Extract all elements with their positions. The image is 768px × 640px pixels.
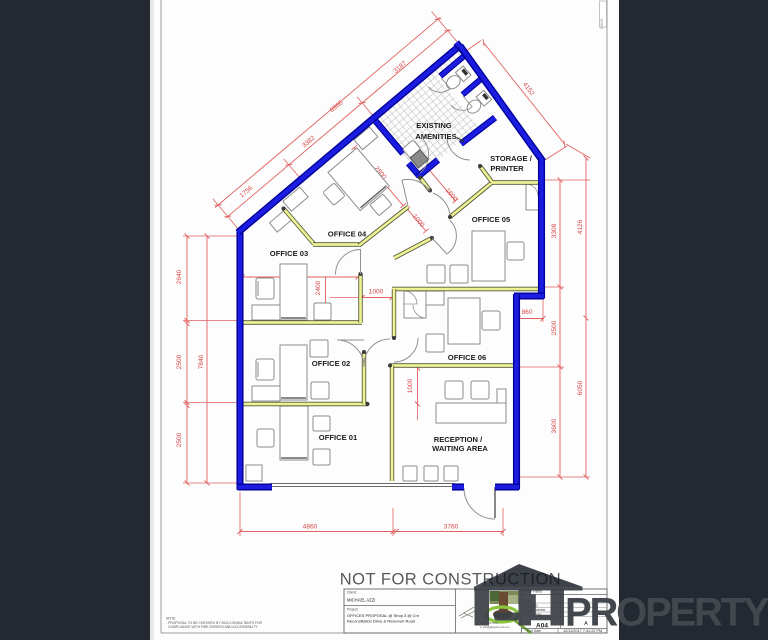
svg-text:OFFICE 01: OFFICE 01 xyxy=(319,433,358,442)
svg-text:e. info@jlproperty.com.au: e. info@jlproperty.com.au xyxy=(480,625,510,629)
svg-text:7840: 7840 xyxy=(198,354,205,369)
svg-text:Plot Date: Plot Date xyxy=(527,629,541,633)
svg-text:RECEPTION /: RECEPTION / xyxy=(434,435,483,444)
svg-text:STORAGE /: STORAGE / xyxy=(490,154,533,163)
svg-text:1000: 1000 xyxy=(369,289,384,296)
svg-text:NOT FOR CONSTRUCTION: NOT FOR CONSTRUCTION xyxy=(340,571,561,589)
svg-text:OFFICE 04: OFFICE 04 xyxy=(328,230,367,239)
svg-text:AMENITIES: AMENITIES xyxy=(415,132,456,141)
svg-text:1000: 1000 xyxy=(407,378,414,393)
svg-text:860: 860 xyxy=(521,309,532,316)
svg-text:OFFICE 05: OFFICE 05 xyxy=(472,215,511,224)
svg-text:WAITING AREA: WAITING AREA xyxy=(432,444,488,453)
svg-text:PROPERTY: PROPERTY xyxy=(565,591,768,635)
svg-text:OFFICES PROPOSAL @ Shop 3 @ Cn: OFFICES PROPOSAL @ Shop 3 @ Cnr xyxy=(347,613,420,618)
svg-text:4126: 4126 xyxy=(577,219,584,234)
svg-text:V W 09: V W 09 xyxy=(600,19,604,30)
svg-text:6050: 6050 xyxy=(577,380,584,395)
svg-text:OFFICE 02: OFFICE 02 xyxy=(312,359,350,368)
svg-text:3308: 3308 xyxy=(551,223,558,238)
svg-text:2640: 2640 xyxy=(176,269,183,284)
svg-text:3600: 3600 xyxy=(551,418,558,433)
svg-text:OFFICE 06: OFFICE 06 xyxy=(448,353,486,362)
svg-text:EXISTING: EXISTING xyxy=(416,121,452,130)
svg-text:4860: 4860 xyxy=(303,524,318,531)
svg-text:3760: 3760 xyxy=(444,524,459,531)
svg-text:2500: 2500 xyxy=(551,320,558,335)
svg-text:MICHAEL AZZI: MICHAEL AZZI xyxy=(347,598,375,603)
svg-text:NOTE:: NOTE: xyxy=(166,617,176,621)
svg-text:2500: 2500 xyxy=(176,432,183,447)
svg-text:Client:: Client: xyxy=(347,591,357,595)
svg-text:OFFICE 03: OFFICE 03 xyxy=(270,249,308,258)
svg-text:2500: 2500 xyxy=(176,354,183,369)
svg-text:Project:: Project: xyxy=(347,608,359,612)
svg-text:COMPLIANCE WITH FIRE EGRESS AN: COMPLIANCE WITH FIRE EGRESS AND ACCESSIB… xyxy=(168,625,258,629)
svg-text:Reconciliation Drive & Reservo: Reconciliation Drive & Reservoir Road xyxy=(347,619,415,624)
svg-text:PRINTER: PRINTER xyxy=(490,164,524,173)
svg-text:2400: 2400 xyxy=(315,280,322,295)
